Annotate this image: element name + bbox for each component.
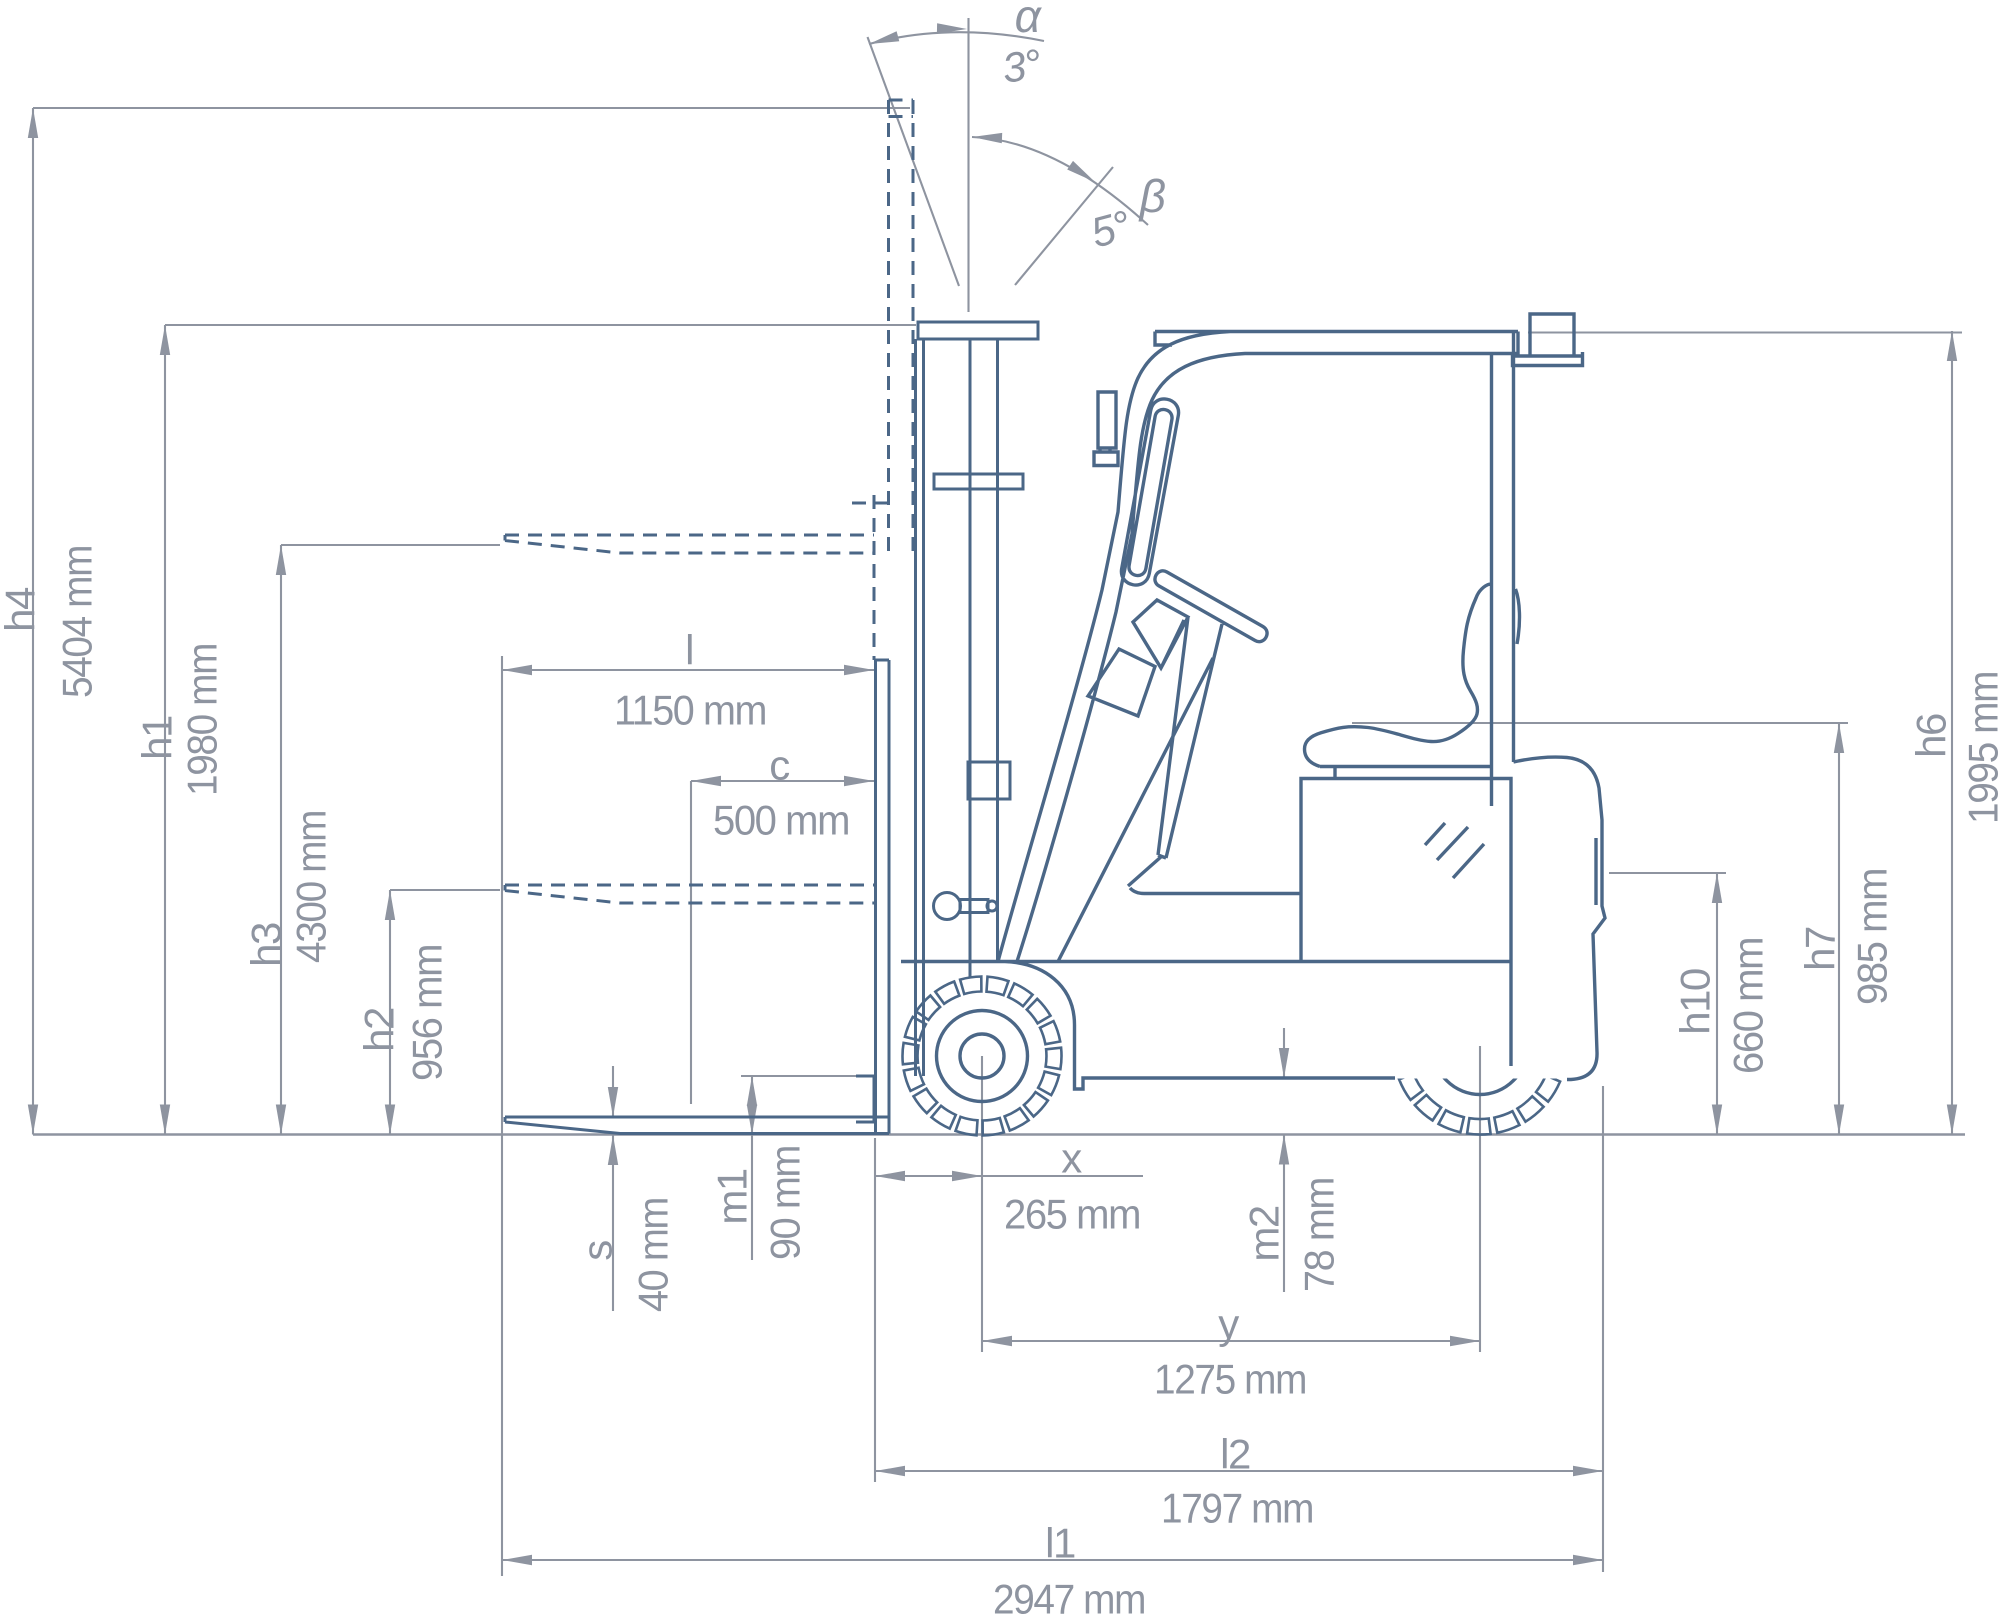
svg-text:h6: h6 xyxy=(1908,714,1955,758)
svg-text:x: x xyxy=(1061,1135,1082,1182)
svg-text:265 mm: 265 mm xyxy=(1004,1191,1140,1238)
svg-text:1150 mm: 1150 mm xyxy=(614,687,766,734)
svg-text:h3: h3 xyxy=(243,923,290,967)
svg-text:500 mm: 500 mm xyxy=(713,797,849,844)
svg-text:4300 mm: 4300 mm xyxy=(288,811,335,963)
svg-text:40 mm: 40 mm xyxy=(630,1198,677,1312)
svg-text:90 mm: 90 mm xyxy=(762,1146,809,1260)
svg-text:h1: h1 xyxy=(134,716,181,760)
svg-text:h4: h4 xyxy=(0,587,44,632)
svg-text:78 mm: 78 mm xyxy=(1296,1178,1343,1292)
svg-text:660 mm: 660 mm xyxy=(1725,938,1772,1074)
svg-text:2947 mm: 2947 mm xyxy=(993,1576,1145,1617)
svg-text:5404 mm: 5404 mm xyxy=(54,546,101,698)
svg-text:985 mm: 985 mm xyxy=(1849,869,1896,1005)
svg-text:c: c xyxy=(769,742,789,789)
svg-text:β: β xyxy=(1138,170,1166,222)
svg-text:α: α xyxy=(1015,0,1043,42)
svg-text:1995 mm: 1995 mm xyxy=(1960,672,2000,824)
svg-text:m1: m1 xyxy=(709,1169,756,1224)
svg-text:s: s xyxy=(574,1241,621,1261)
svg-text:l1: l1 xyxy=(1045,1520,1075,1567)
svg-text:h7: h7 xyxy=(1797,927,1844,971)
svg-text:h2: h2 xyxy=(356,1008,403,1052)
svg-text:956 mm: 956 mm xyxy=(404,945,451,1081)
svg-text:l: l xyxy=(685,627,693,674)
svg-text:1275 mm: 1275 mm xyxy=(1154,1356,1306,1403)
svg-text:m2: m2 xyxy=(1241,1206,1288,1261)
svg-text:y: y xyxy=(1218,1301,1239,1348)
svg-text:l2: l2 xyxy=(1220,1431,1250,1478)
svg-text:1980 mm: 1980 mm xyxy=(179,644,226,796)
svg-text:3°: 3° xyxy=(999,40,1043,92)
svg-text:h10: h10 xyxy=(1672,969,1719,1035)
svg-text:1797 mm: 1797 mm xyxy=(1161,1485,1313,1532)
